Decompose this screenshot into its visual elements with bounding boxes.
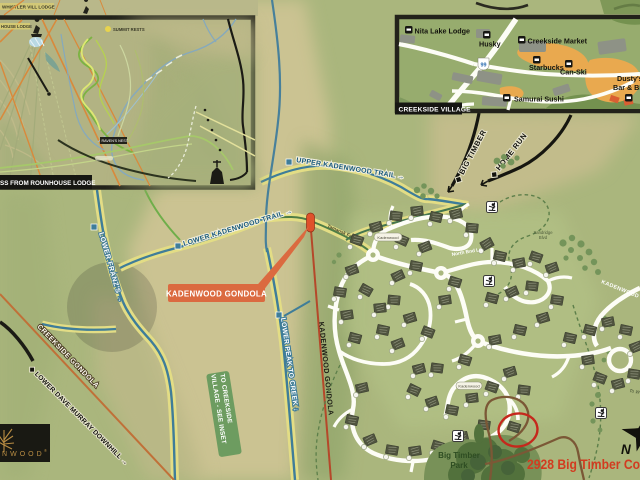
- svg-text:Starbucks: Starbucks: [529, 63, 564, 72]
- svg-text:SS FROM ROUNHOUSE LODGE: SS FROM ROUNHOUSE LODGE: [0, 180, 96, 187]
- svg-text:Blvd: Blvd: [539, 235, 548, 240]
- svg-text:RAVEN'S NEST: RAVEN'S NEST: [102, 139, 129, 143]
- svg-text:®: ®: [44, 448, 47, 453]
- svg-text:Nita Lake Lodge: Nita Lake Lodge: [415, 27, 471, 36]
- svg-text:Creekside Market: Creekside Market: [528, 37, 588, 46]
- svg-text:WHISTLER VILL LODGE: WHISTLER VILL LODGE: [2, 5, 55, 10]
- svg-text:N: N: [621, 442, 631, 457]
- svg-text:KADENWOOD: KADENWOOD: [0, 451, 45, 458]
- svg-text:Dusty's: Dusty's: [617, 74, 640, 83]
- svg-text:Husky: Husky: [479, 40, 501, 49]
- svg-text:Kadenwood: Kadenwood: [377, 235, 398, 240]
- svg-text:SUMMIT RESTS: SUMMIT RESTS: [113, 27, 145, 32]
- svg-text:Kadenwood: Kadenwood: [458, 384, 479, 389]
- svg-text:Can-Ski: Can-Ski: [560, 68, 587, 77]
- svg-text:Samurai Sushi: Samurai Sushi: [514, 95, 564, 104]
- svg-text:HOUSE LODGE: HOUSE LODGE: [1, 24, 32, 29]
- svg-text:Big Timber: Big Timber: [438, 451, 480, 460]
- svg-text:Bar & BB: Bar & BB: [613, 83, 640, 92]
- svg-text:KADENWOOD GONDOLA: KADENWOOD GONDOLA: [166, 290, 267, 299]
- svg-text:Park: Park: [450, 461, 468, 470]
- svg-text:99: 99: [481, 63, 487, 69]
- svg-text:CREEKSIDE VILLAGE: CREEKSIDE VILLAGE: [399, 107, 472, 114]
- svg-text:2928 Big Timber Co: 2928 Big Timber Co: [527, 457, 640, 473]
